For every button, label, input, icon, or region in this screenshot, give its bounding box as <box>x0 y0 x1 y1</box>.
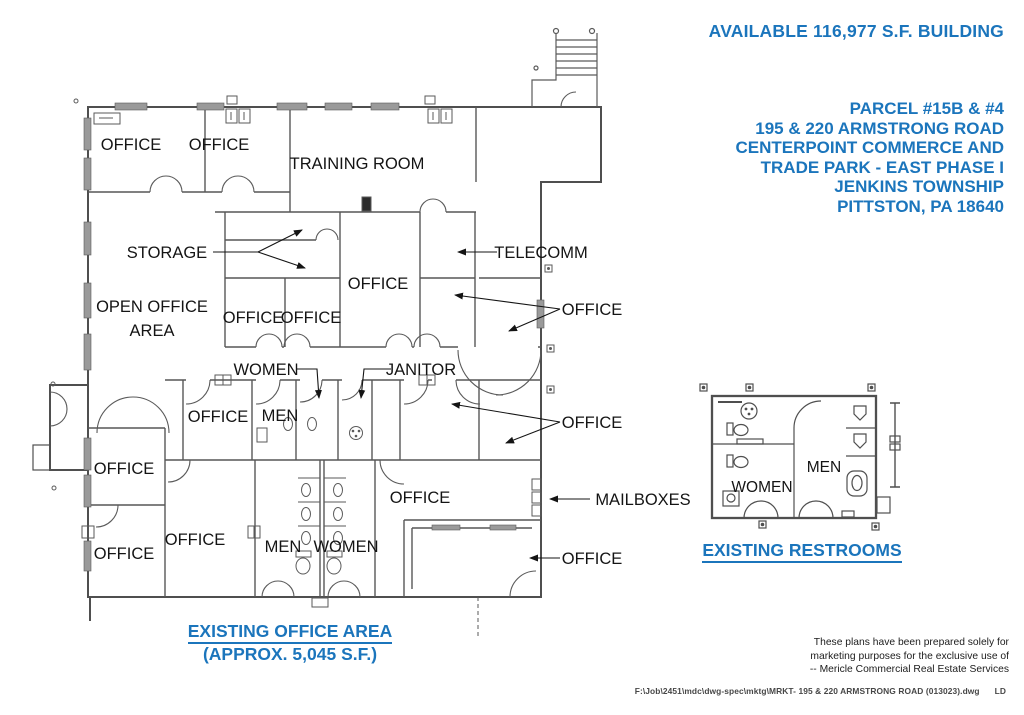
address-line-township: JENKINS TOWNSHIP <box>735 177 1004 197</box>
detail-label-men: MEN <box>807 459 841 476</box>
restrooms-caption: EXISTING RESTROOMS <box>692 540 912 561</box>
address-line-park-2: TRADE PARK - EAST PHASE I <box>735 158 1004 178</box>
office-area-caption-line1: EXISTING OFFICE AREA <box>188 621 393 644</box>
room-label-office-mid-left-2: OFFICE <box>281 309 342 327</box>
room-label-men-upper: MEN <box>262 407 299 425</box>
room-label-office-right-mid: OFFICE <box>562 414 623 432</box>
disclaimer-block: These plans have been prepared solely fo… <box>810 636 1009 677</box>
office-area-caption-line2: (APPROX. 5,045 S.F.) <box>152 643 428 666</box>
room-label-training-room: TRAINING ROOM <box>290 155 425 173</box>
room-label-office-top-1: OFFICE <box>101 136 162 154</box>
room-label-office-center: OFFICE <box>348 275 409 293</box>
floor-plan-page: OFFICE OFFICE TRAINING ROOM STORAGE TELE… <box>0 0 1024 715</box>
file-path-text: F:\Job\2451\mdc\dwg-spec\mktg\MRKT- 195 … <box>635 686 980 696</box>
room-label-open-office-1: OPEN OFFICE <box>96 298 208 316</box>
disclaimer-line-2: marketing purposes for the exclusive use… <box>810 650 1009 664</box>
room-label-office-west-upper: OFFICE <box>188 408 249 426</box>
room-label-open-office-2: AREA <box>130 322 175 340</box>
office-area-caption: EXISTING OFFICE AREA (APPROX. 5,045 S.F.… <box>152 620 428 666</box>
restrooms-caption-text: EXISTING RESTROOMS <box>702 540 901 563</box>
disclaimer-line-1: These plans have been prepared solely fo… <box>810 636 1009 650</box>
stairs-icon <box>532 29 597 108</box>
room-label-telecomm: TELECOMM <box>494 244 588 262</box>
room-label-janitor: JANITOR <box>386 361 456 379</box>
room-label-women-upper: WOMEN <box>233 361 298 379</box>
address-line-park-1: CENTERPOINT COMMERCE AND <box>735 138 1004 158</box>
room-label-men-lower: MEN <box>265 538 302 556</box>
room-label-office-lower-center: OFFICE <box>390 489 451 507</box>
room-label-office-right-upper: OFFICE <box>562 301 623 319</box>
room-label-office-west-1: OFFICE <box>94 460 155 478</box>
room-label-office-sw-inner: OFFICE <box>165 531 226 549</box>
room-labels: OFFICE OFFICE TRAINING ROOM STORAGE TELE… <box>94 136 691 568</box>
property-address-block: PARCEL #15B & #4 195 & 220 ARMSTRONG ROA… <box>735 99 1004 216</box>
drawing-file-path: F:\Job\2451\mdc\dwg-spec\mktg\MRKT- 195 … <box>635 686 1006 696</box>
room-label-office-mid-left-1: OFFICE <box>223 309 284 327</box>
room-label-office-top-2: OFFICE <box>189 136 250 154</box>
drafter-initials: LD <box>995 686 1006 696</box>
detail-label-women: WOMEN <box>731 479 792 496</box>
room-label-storage: STORAGE <box>127 244 207 262</box>
restroom-detail-plan: WOMEN MEN <box>700 384 900 530</box>
plan-inner-walls <box>88 107 541 597</box>
address-line-parcel: PARCEL #15B & #4 <box>735 99 1004 119</box>
address-line-city: PITTSTON, PA 18640 <box>735 197 1004 217</box>
room-label-office-west-2: OFFICE <box>94 545 155 563</box>
room-label-office-right-lower: OFFICE <box>562 550 623 568</box>
disclaimer-line-3: -- Mericle Commercial Real Estate Servic… <box>810 663 1009 677</box>
available-sf-heading: AVAILABLE 116,977 S.F. BUILDING <box>709 21 1004 42</box>
address-line-street: 195 & 220 ARMSTRONG ROAD <box>735 119 1004 139</box>
room-label-mailboxes: MAILBOXES <box>595 491 690 509</box>
room-label-women-lower: WOMEN <box>313 538 378 556</box>
